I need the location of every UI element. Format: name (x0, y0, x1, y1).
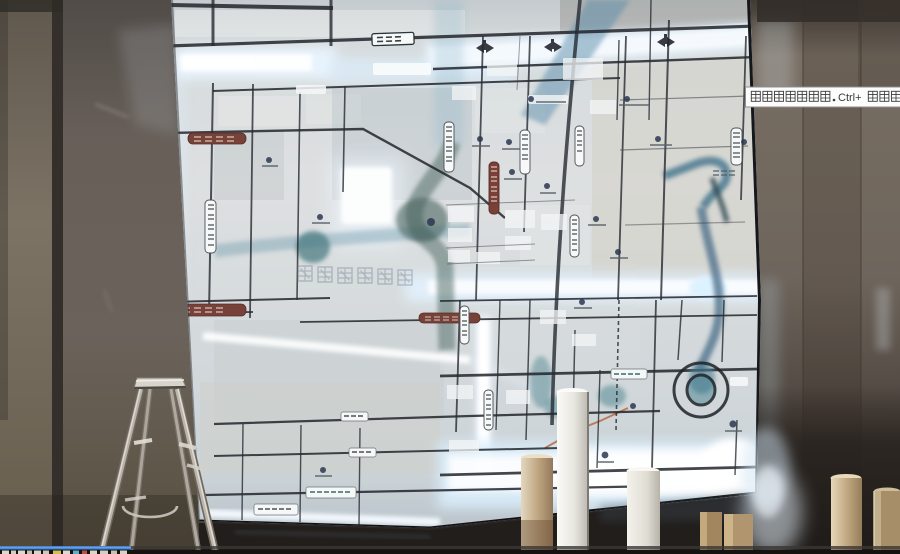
svg-text:Ctrl+: Ctrl+ (838, 92, 862, 104)
